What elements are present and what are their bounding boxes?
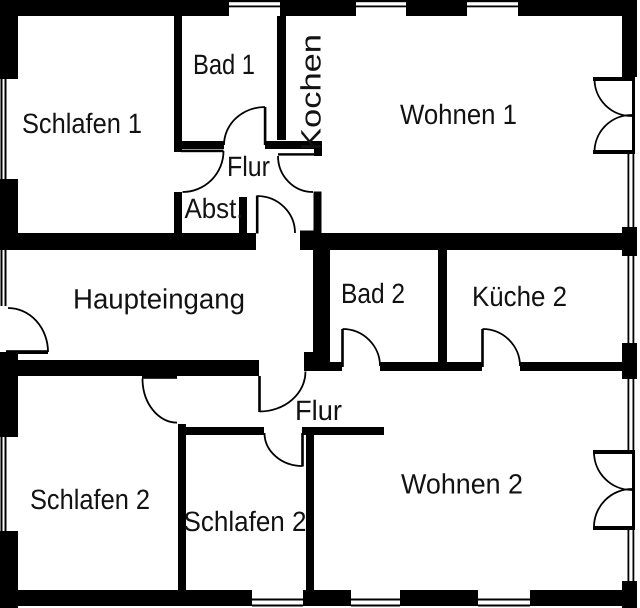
svg-text:Bad 1: Bad 1 <box>193 49 255 80</box>
svg-text:Abst.: Abst. <box>185 193 244 224</box>
svg-text:Schlafen 2: Schlafen 2 <box>30 484 150 515</box>
svg-text:Flur: Flur <box>295 395 342 426</box>
svg-text:Bad 2: Bad 2 <box>341 278 405 309</box>
svg-text:Wohnen 1: Wohnen 1 <box>400 99 517 130</box>
svg-text:Kochen: Kochen <box>296 34 327 151</box>
svg-text:Schlafen 1: Schlafen 1 <box>22 108 142 139</box>
svg-text:Flur: Flur <box>227 151 270 182</box>
svg-text:Schlafen 2: Schlafen 2 <box>184 506 307 537</box>
svg-text:Wohnen 2: Wohnen 2 <box>401 469 523 500</box>
svg-text:Haupteingang: Haupteingang <box>73 284 245 315</box>
svg-text:Küche 2: Küche 2 <box>472 281 567 312</box>
